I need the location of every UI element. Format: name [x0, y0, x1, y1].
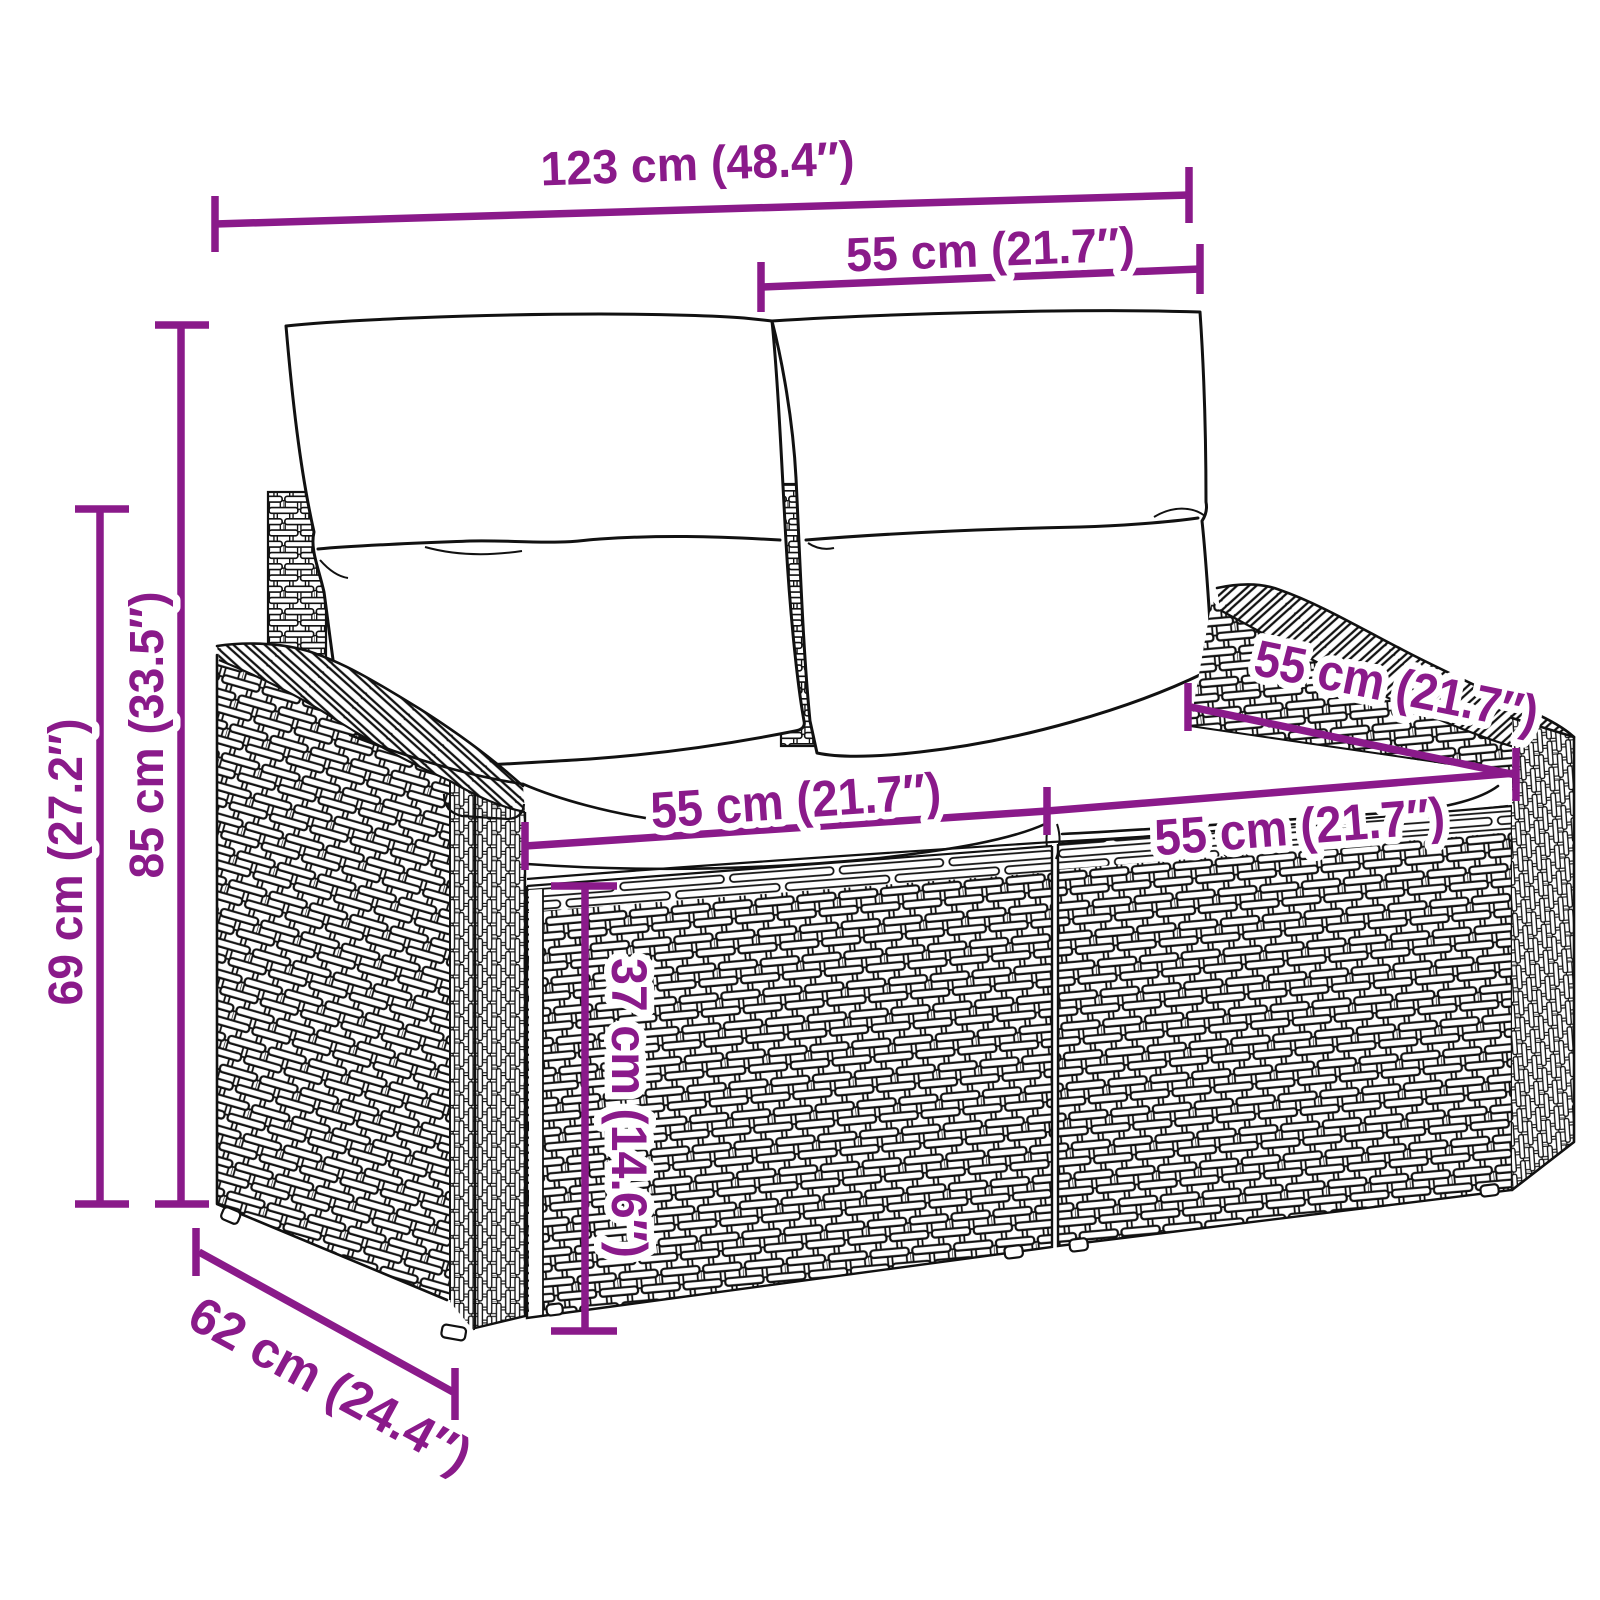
- svg-text:123 cm (48.4″): 123 cm (48.4″): [540, 133, 856, 197]
- svg-text:55 cm (21.7″): 55 cm (21.7″): [845, 218, 1136, 282]
- svg-text:69 cm (27.2″): 69 cm (27.2″): [40, 719, 93, 1006]
- svg-text:37 cm (14.6″): 37 cm (14.6″): [601, 958, 657, 1258]
- svg-text:85 cm (33.5″): 85 cm (33.5″): [121, 592, 174, 879]
